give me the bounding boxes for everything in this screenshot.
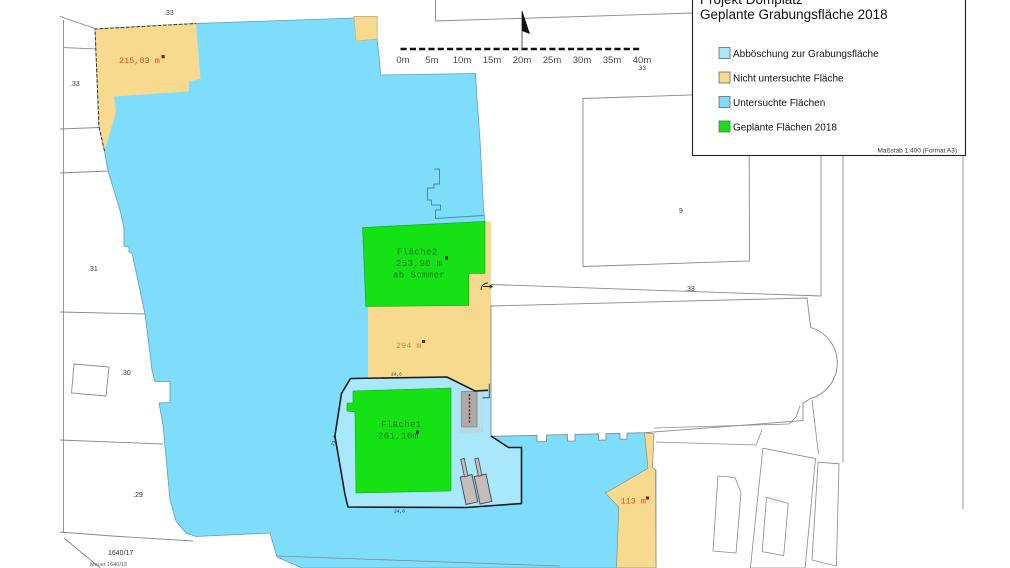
svg-text:Fläche1: Fläche1 (381, 420, 422, 430)
svg-text:Nicht untersuchte Fläche: Nicht untersuchte Fläche (733, 74, 844, 85)
svg-text:Untersuchte Flächen: Untersuchte Flächen (733, 98, 825, 109)
svg-text:9: 9 (679, 208, 683, 215)
svg-text:24,6: 24,6 (391, 372, 402, 378)
svg-text:Geplante Flächen 2018: Geplante Flächen 2018 (733, 123, 837, 134)
svg-text:ab Sommer: ab Sommer (393, 271, 445, 281)
svg-text:20m: 20m (513, 55, 532, 66)
svg-text:.33: .33 (637, 65, 646, 72)
svg-text:.29: .29 (133, 492, 143, 499)
svg-text:215,03 m: 215,03 m (119, 56, 160, 66)
svg-text:5m: 5m (425, 55, 438, 66)
svg-text:Geplante Grabungsfläche 2018: Geplante Grabungsfläche 2018 (700, 7, 888, 22)
svg-text:294 m: 294 m (396, 341, 422, 351)
svg-text:.33: .33 (164, 10, 174, 17)
svg-text:113 m: 113 m (621, 497, 647, 507)
svg-text:253,90 m: 253,90 m (396, 259, 442, 269)
svg-text:24,6: 24,6 (394, 509, 405, 515)
svg-text:261,10m: 261,10m (378, 432, 419, 442)
svg-text:Projekt Domplatz: Projekt Domplatz (700, 0, 803, 7)
svg-text:Abböschung zur Grabungsfläche: Abböschung zur Grabungsfläche (733, 49, 879, 60)
svg-text:Mauer 1640/18: Mauer 1640/18 (90, 562, 127, 568)
svg-text:25m: 25m (543, 55, 562, 66)
svg-text:1640/17: 1640/17 (108, 550, 133, 557)
svg-text:30m: 30m (573, 55, 592, 66)
svg-text:15m: 15m (483, 55, 502, 66)
svg-text:0m: 0m (396, 55, 409, 66)
svg-text:10m: 10m (453, 55, 472, 66)
svg-text:.33: .33 (685, 286, 695, 293)
svg-text:.31: .31 (88, 266, 98, 273)
svg-text:Maßstab 1:400 (Format A3): Maßstab 1:400 (Format A3) (878, 148, 957, 155)
svg-text:.33: .33 (70, 81, 80, 88)
svg-text:35m: 35m (603, 55, 622, 66)
svg-text:.30: .30 (121, 370, 131, 377)
svg-text:Fläche2: Fläche2 (397, 248, 438, 258)
